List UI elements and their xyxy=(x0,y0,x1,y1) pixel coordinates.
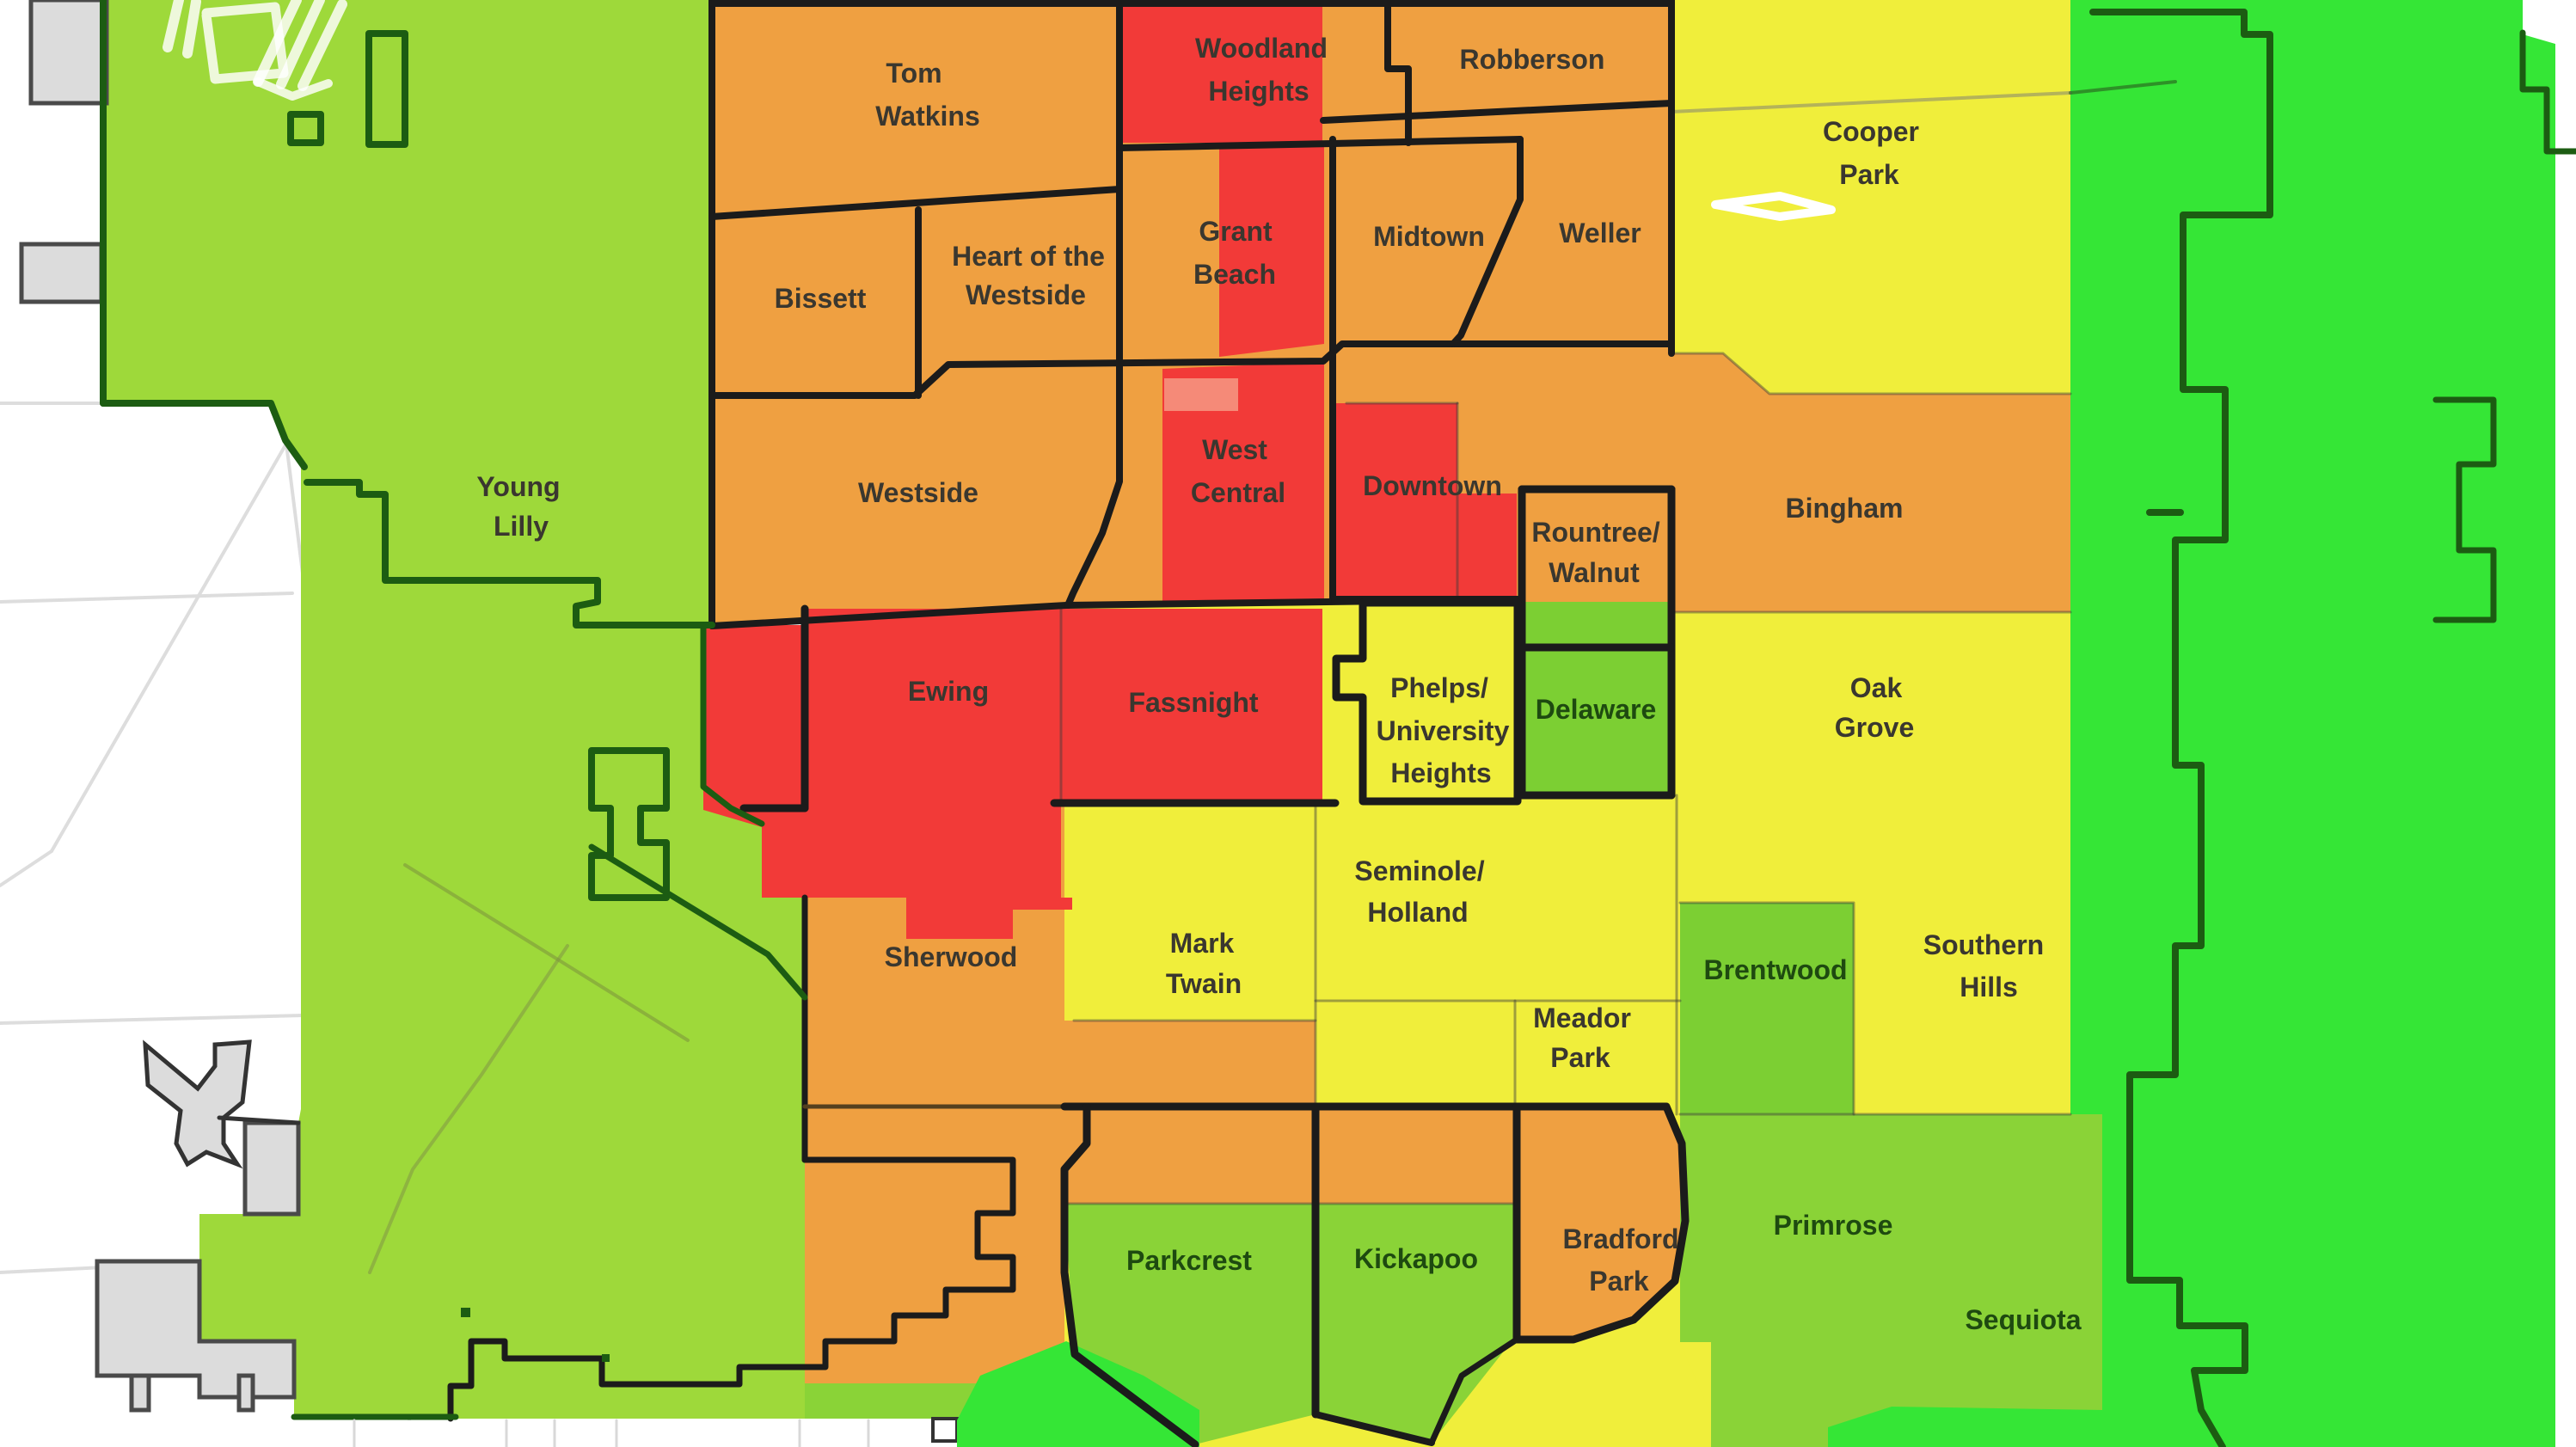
svg-text:Watkins: Watkins xyxy=(875,101,980,132)
svg-text:Southern: Southern xyxy=(1923,929,2044,960)
svg-text:Rountree/: Rountree/ xyxy=(1531,517,1659,548)
svg-text:Brentwood: Brentwood xyxy=(1703,954,1847,985)
svg-text:Holland: Holland xyxy=(1367,897,1468,928)
svg-text:Walnut: Walnut xyxy=(1549,557,1640,588)
svg-text:Tom: Tom xyxy=(886,58,941,89)
svg-text:Heart of the: Heart of the xyxy=(952,241,1105,272)
svg-text:Sequiota: Sequiota xyxy=(1965,1304,2081,1335)
svg-text:Beach: Beach xyxy=(1193,259,1276,290)
svg-text:Parkcrest: Parkcrest xyxy=(1126,1245,1252,1276)
svg-text:Bingham: Bingham xyxy=(1786,493,1904,524)
svg-text:Westside: Westside xyxy=(966,279,1086,310)
svg-text:Robberson: Robberson xyxy=(1460,44,1605,75)
svg-text:Ewing: Ewing xyxy=(908,676,989,707)
svg-text:Heights: Heights xyxy=(1208,76,1309,107)
svg-text:Seminole/: Seminole/ xyxy=(1354,855,1484,886)
svg-text:University: University xyxy=(1377,715,1510,746)
svg-text:Central: Central xyxy=(1191,477,1285,508)
svg-text:Kickapoo: Kickapoo xyxy=(1354,1243,1478,1274)
svg-text:Bradford: Bradford xyxy=(1562,1223,1678,1254)
svg-text:Park: Park xyxy=(1839,159,1899,190)
svg-text:Park: Park xyxy=(1550,1042,1610,1073)
svg-text:Grant: Grant xyxy=(1199,216,1273,247)
svg-text:Fassnight: Fassnight xyxy=(1128,687,1258,718)
svg-text:Westside: Westside xyxy=(858,477,978,508)
svg-text:Lilly: Lilly xyxy=(494,511,549,542)
svg-text:Weller: Weller xyxy=(1559,218,1641,248)
svg-text:Oak: Oak xyxy=(1850,672,1903,703)
svg-text:Cooper: Cooper xyxy=(1823,116,1919,147)
svg-text:Woodland: Woodland xyxy=(1195,33,1328,64)
svg-text:Mark: Mark xyxy=(1170,928,1235,959)
svg-text:Bissett: Bissett xyxy=(775,283,867,314)
svg-text:Twain: Twain xyxy=(1166,968,1242,999)
svg-text:West: West xyxy=(1202,434,1267,465)
svg-text:Grove: Grove xyxy=(1835,712,1914,743)
svg-text:Delaware: Delaware xyxy=(1536,694,1657,725)
svg-text:Downtown: Downtown xyxy=(1363,470,1502,501)
svg-text:Primrose: Primrose xyxy=(1774,1210,1893,1241)
svg-text:Midtown: Midtown xyxy=(1373,221,1485,252)
svg-text:Park: Park xyxy=(1589,1266,1649,1297)
svg-text:Phelps/: Phelps/ xyxy=(1390,672,1488,703)
svg-text:Sherwood: Sherwood xyxy=(885,941,1018,972)
svg-text:Meador: Meador xyxy=(1533,1002,1631,1033)
svg-text:Young: Young xyxy=(476,471,560,502)
svg-text:Heights: Heights xyxy=(1390,757,1491,788)
svg-text:Hills: Hills xyxy=(1960,972,2018,1002)
